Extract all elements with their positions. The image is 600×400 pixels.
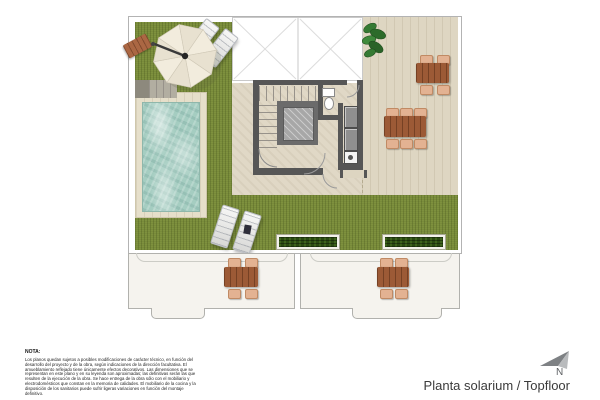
sink-drain: [348, 155, 353, 160]
towel: [243, 224, 251, 234]
wall-top-left-segment: [253, 80, 347, 85]
note-heading: NOTA:: [25, 349, 40, 355]
north-arrow-icon: [538, 348, 572, 374]
plan-title: Planta solarium / Topfloor: [340, 378, 570, 393]
elevator-car: [283, 107, 314, 141]
chair: [414, 139, 427, 149]
chair: [245, 289, 258, 299]
terrace-lower-left-inset-line: [136, 253, 288, 262]
terrace-lower-left-notch: [151, 308, 205, 319]
dining-table-upper-1: [416, 63, 449, 83]
note-text: Los planos quedan sujetos a posibles mod…: [25, 358, 197, 396]
chair: [228, 289, 241, 299]
kitchenette-sink: [344, 151, 358, 164]
chair: [420, 85, 433, 95]
planter-left: [277, 235, 339, 249]
toilet-cistern: [322, 88, 335, 97]
chair: [437, 85, 450, 95]
chair: [395, 289, 408, 299]
terrace-lower-right-notch: [352, 308, 442, 319]
dining-table-upper-2: [384, 116, 426, 137]
chair: [386, 139, 399, 149]
wc-partition-horizontal: [318, 115, 342, 120]
chair: [400, 139, 413, 149]
pool-water: [142, 102, 200, 212]
floor-plan-canvas: NOTA: Los planos quedan sujetos a posibl…: [0, 0, 600, 400]
chair: [380, 289, 393, 299]
kitchenette-bottom-wall: [338, 163, 363, 170]
wall-bottom: [253, 168, 323, 175]
north-label: N: [556, 367, 563, 378]
kitchenette-appliance-2: [344, 128, 358, 151]
kitchenette-appliance-1: [344, 106, 358, 128]
toilet-icon: [324, 97, 334, 110]
plant-icon: [362, 20, 388, 60]
dining-table-lower-right: [377, 267, 409, 287]
stair-flight-left: [259, 101, 277, 148]
kitchenette-left-wall: [338, 103, 343, 163]
planter-right: [383, 235, 445, 249]
void-skylight-block: [232, 17, 363, 81]
pool-steps-wall: [135, 80, 149, 98]
kitchenette-exterior-step: [340, 170, 367, 178]
dining-table-lower-left: [224, 267, 258, 287]
parasol-icon: [149, 19, 221, 91]
stair-flight-top: [259, 86, 318, 101]
